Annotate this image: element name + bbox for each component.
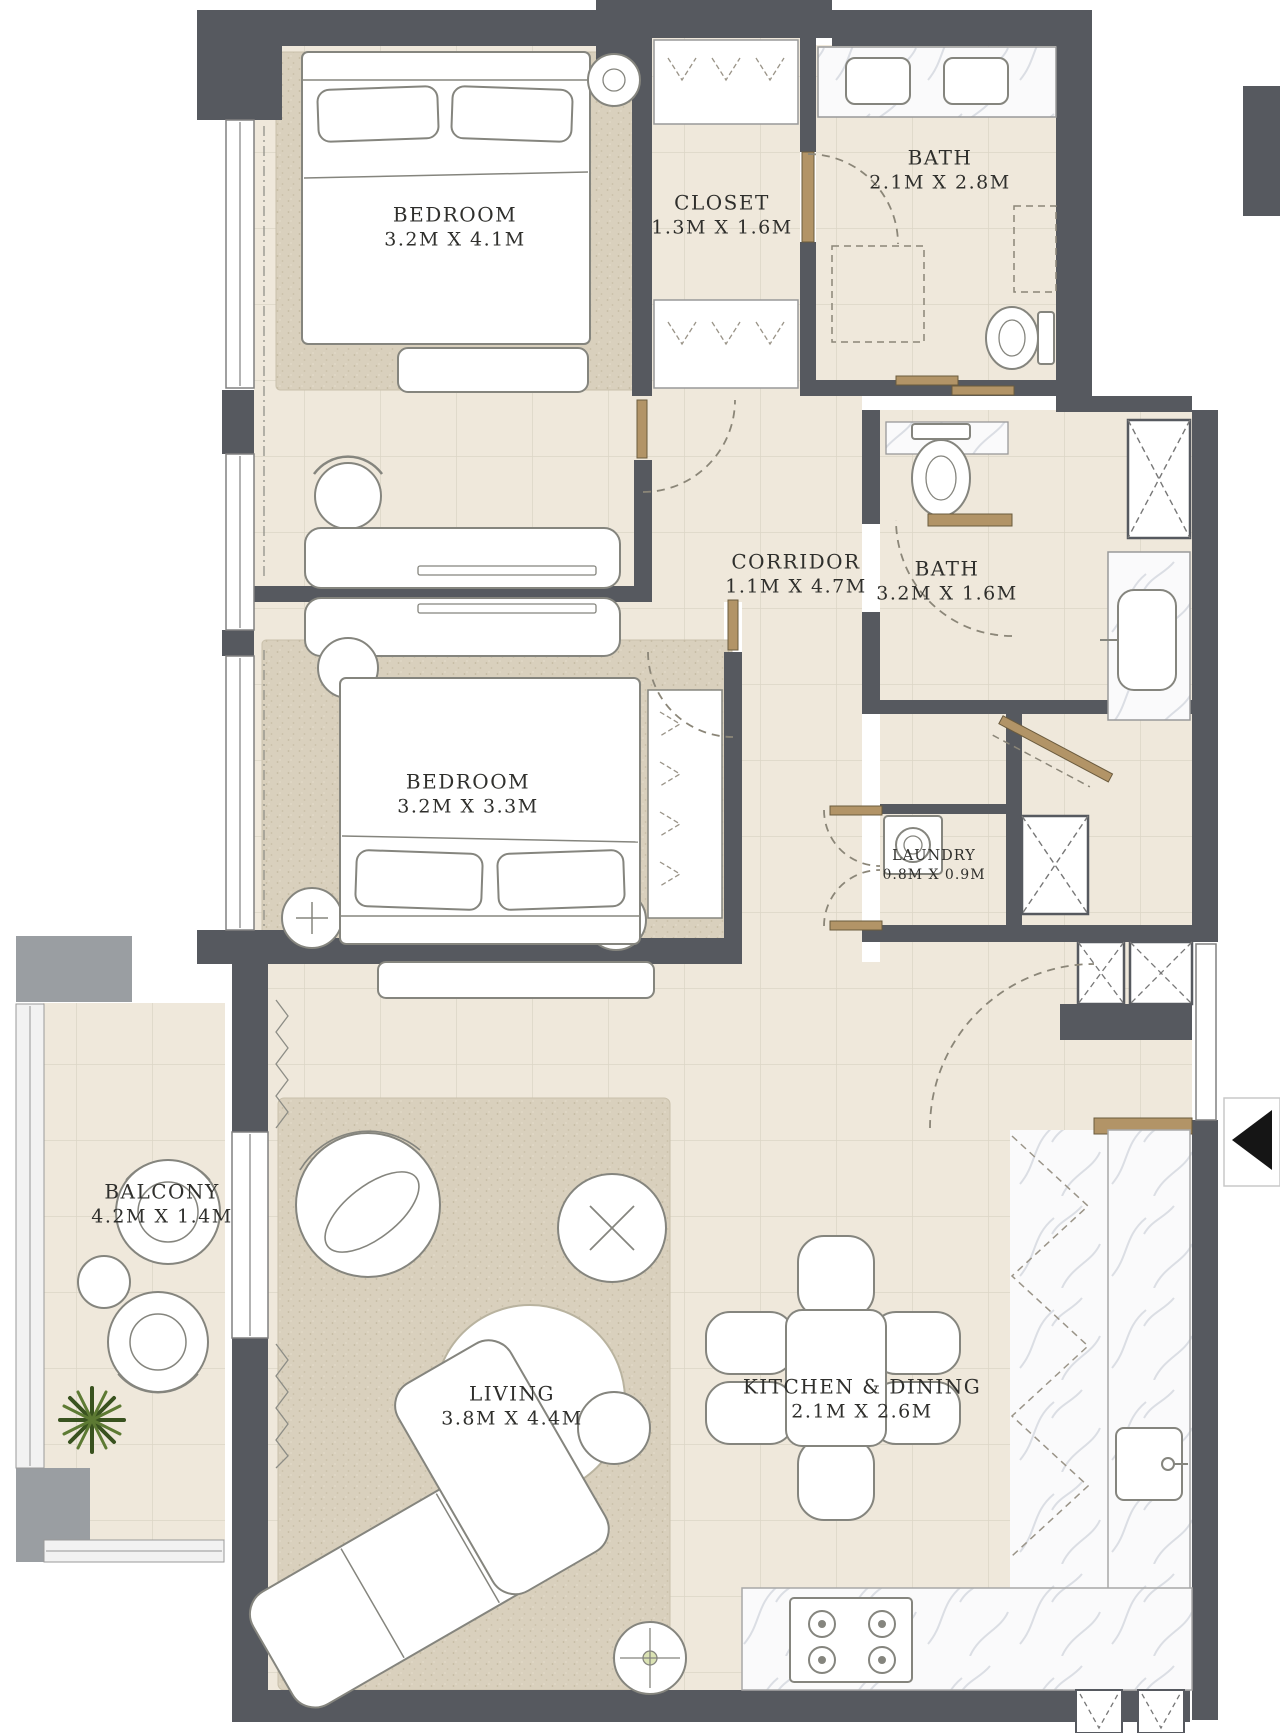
laptop-icon xyxy=(418,604,596,613)
pillow-icon xyxy=(451,86,573,142)
room-dims: 1.1M X 4.7M xyxy=(725,575,866,600)
room-label-bath-2: BATH 3.2M X 1.6M xyxy=(876,555,1017,606)
pillow-icon xyxy=(355,850,483,910)
sink-icon xyxy=(1118,590,1176,690)
balcony-table-icon xyxy=(78,1256,130,1308)
room-dims: 3.2M X 1.6M xyxy=(876,582,1017,607)
room-name: BEDROOM xyxy=(384,201,525,227)
door-leaf xyxy=(928,514,1012,526)
room-dims: 4.2M X 1.4M xyxy=(91,1205,232,1230)
room-label-bedroom-2: BEDROOM 3.2M X 3.3M xyxy=(397,768,538,819)
wicker-chair-icon xyxy=(108,1292,208,1393)
toilet-icon xyxy=(986,307,1054,369)
room-label-living: LIVING 3.8M X 4.4M xyxy=(441,1380,582,1431)
laptop-icon xyxy=(418,566,596,575)
floor-plan-drawing xyxy=(0,0,1280,1733)
room-name: LAUNDRY xyxy=(882,847,985,866)
door-leaf xyxy=(728,600,738,650)
dining-chair-icon xyxy=(798,1438,874,1520)
room-name: CLOSET xyxy=(651,189,792,215)
room-dims: 3.2M X 3.3M xyxy=(397,795,538,820)
tv-console-icon xyxy=(378,962,654,998)
stove-icon xyxy=(790,1598,912,1682)
room-dims: 1.3M X 1.6M xyxy=(651,216,792,241)
desk-chair-icon xyxy=(315,463,381,529)
room-label-laundry: LAUNDRY 0.8M X 0.9M xyxy=(882,847,985,885)
room-name: KITCHEN & DINING xyxy=(743,1373,981,1399)
room-name: BEDROOM xyxy=(397,768,538,794)
room-name: BALCONY xyxy=(91,1178,232,1204)
door-leaf xyxy=(802,152,814,242)
sink-icon xyxy=(846,58,910,104)
door-leaf xyxy=(830,921,882,930)
armchair-icon xyxy=(296,1131,440,1277)
dining-chair-icon xyxy=(706,1312,794,1374)
ottoman-icon xyxy=(578,1392,650,1464)
kitchen-sink-icon xyxy=(1116,1428,1188,1500)
dining-chair-icon xyxy=(798,1236,874,1318)
room-label-corridor: CORRIDOR 1.1M X 4.7M xyxy=(725,548,866,599)
room-name: LIVING xyxy=(441,1380,582,1406)
room-dims: 2.1M X 2.6M xyxy=(743,1400,981,1425)
room-dims: 3.2M X 4.1M xyxy=(384,228,525,253)
room-label-closet: CLOSET 1.3M X 1.6M xyxy=(651,189,792,240)
door-leaf xyxy=(952,386,1014,395)
room-dims: 0.8M X 0.9M xyxy=(882,866,985,884)
door-leaf xyxy=(830,806,882,815)
pillow-icon xyxy=(497,850,625,910)
floor-plan: BEDROOM 3.2M X 4.1M CLOSET 1.3M X 1.6M B… xyxy=(0,0,1280,1733)
floor-lamp-icon xyxy=(614,1622,686,1694)
room-name: CORRIDOR xyxy=(725,548,866,574)
room-label-balcony: BALCONY 4.2M X 1.4M xyxy=(91,1178,232,1229)
room-name: BATH xyxy=(876,555,1017,581)
toilet-icon xyxy=(912,424,970,516)
door-leaf xyxy=(637,400,647,458)
room-label-bath-1: BATH 2.1M X 2.8M xyxy=(869,144,1010,195)
plant-icon xyxy=(60,1388,124,1452)
room-label-kitchen-dining: KITCHEN & DINING 2.1M X 2.6M xyxy=(743,1373,981,1424)
wardrobe-icon xyxy=(648,690,722,918)
room-name: BATH xyxy=(869,144,1010,170)
sink-icon xyxy=(944,58,1008,104)
desk-icon xyxy=(305,528,620,588)
room-label-bedroom-1: BEDROOM 3.2M X 4.1M xyxy=(384,201,525,252)
pillow-icon xyxy=(317,86,439,142)
side-table-icon xyxy=(558,1174,666,1282)
bench-icon xyxy=(398,348,588,392)
room-dims: 2.1M X 2.8M xyxy=(869,171,1010,196)
door-leaf xyxy=(896,376,958,385)
room-dims: 3.8M X 4.4M xyxy=(441,1407,582,1432)
